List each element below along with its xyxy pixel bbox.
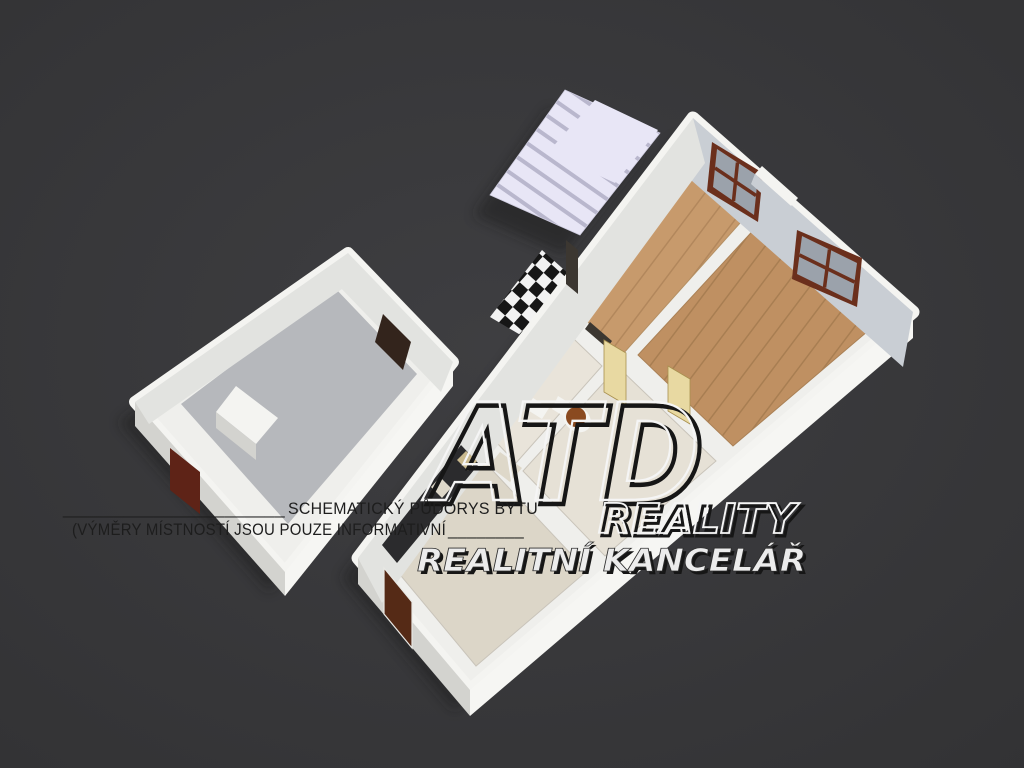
disclaimer-title: SCHEMATICKÝ PŮDORYS BYTU [288, 499, 538, 518]
disclaimer-note: (VÝMĚRY MÍSTNOSTÍ JSOU POUZE INFORMATIVN… [72, 520, 446, 539]
floor-plan-image: ATD ATD REALITY REALITY REALITNÍ KANCELÁ… [0, 0, 1024, 768]
floor-plan-canvas: ATD ATD REALITY REALITY REALITNÍ KANCELÁ… [0, 0, 1024, 768]
disclaimer-rule-left: ______________________ [62, 499, 285, 518]
disclaimer-rule-right: ________ [447, 520, 524, 539]
reality-watermark: REALITY [598, 495, 800, 543]
kancelar-watermark: REALITNÍ KANCELÁŘ [417, 543, 806, 579]
